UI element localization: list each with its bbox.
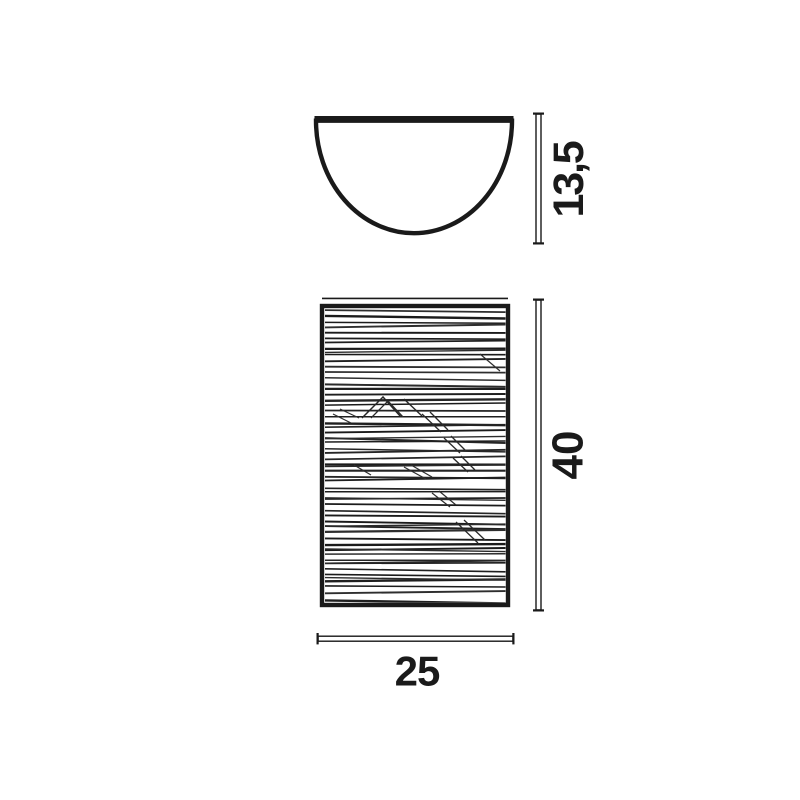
svg-text:25: 25 (395, 648, 440, 695)
svg-text:13,5: 13,5 (545, 141, 593, 217)
svg-text:40: 40 (544, 431, 593, 480)
